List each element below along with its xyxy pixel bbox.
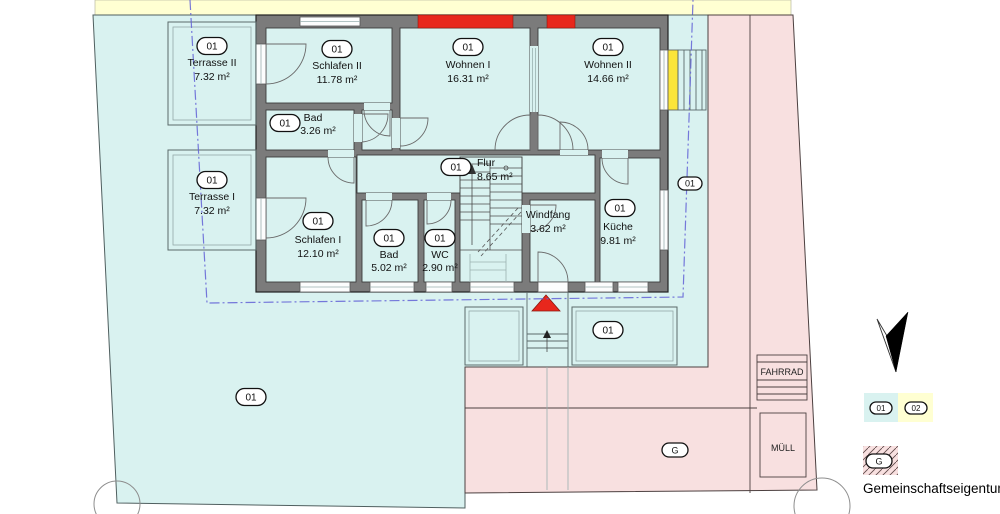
room-fill-kueche [600,158,660,282]
entry-terrace-badge: 01 [593,322,623,339]
unit-badge: 01 [312,217,324,228]
room-name: Wohnen I [446,59,491,71]
room-name: Flur [477,157,496,169]
room-name: WC [431,249,449,261]
communal-badge: G [671,446,678,456]
floor-plan-canvas: FAHRRAD MÜLL 01 Terrasse II 7.32 m² 01 S… [0,0,1000,514]
unit2-stair-access-bar [668,50,678,110]
legend-unit2-swatch: 02 [898,393,933,422]
unit-badge: 02 [912,404,921,413]
room-area: 5.02 m² [371,262,407,274]
room-area: 3.26 m² [300,125,336,137]
room-area: 8.65 m² [477,171,513,183]
room-name: Windfang [526,209,571,221]
legend: 01 02 G Gemeinschaftseigentum [863,312,1000,496]
room-area: 12.10 m² [297,248,339,260]
room-area: 3.62 m² [530,223,566,235]
room-name: Küche [603,221,633,233]
unit-badge: 01 [206,176,218,187]
east-strip-badge: 01 [678,177,702,190]
room-name: Schlafen II [312,60,362,72]
room-area: 14.66 m² [587,73,629,85]
unit-badge: 01 [434,234,446,245]
unit-badge: 01 [602,43,614,54]
red-marked-wall-segments [418,15,575,28]
unit-badge: 01 [614,204,626,215]
unit-badge: 01 [383,234,395,245]
legend-communal-text: Gemeinschaftseigentum [863,481,1000,496]
room-area: 16.31 m² [447,73,489,85]
legend-unit1-swatch: 01 [864,393,898,422]
communal-badge: G [875,457,882,467]
entrance-door-gap [538,282,568,292]
unit-badge: 01 [602,326,614,337]
garden-badge: 01 [236,389,266,406]
north-arrow-icon [877,312,908,372]
unit-badge: 01 [462,43,474,54]
unit-badge: 01 [331,45,343,56]
room-label-kueche: 01 Küche 9.81 m² [600,200,636,248]
room-name: Bad [380,249,399,261]
legend-communal-swatch: G [863,446,898,475]
floor-plan-page: FAHRRAD MÜLL 01 Terrasse II 7.32 m² 01 S… [0,0,1000,514]
room-area: 2.90 m² [422,262,458,274]
bike-label: FAHRRAD [760,367,804,377]
unit-badge: 01 [279,119,291,130]
unit-badge: 01 [206,42,218,53]
room-area: 9.81 m² [600,235,636,247]
room-area: 11.78 m² [317,74,358,86]
communal-g-badge: G [662,443,688,457]
room-name: Bad [304,112,323,124]
room-area: 7.32 m² [194,71,230,83]
unit-badge: 01 [877,404,886,413]
room-name: Schlafen I [295,234,342,246]
room-area: 7.32 m² [194,205,230,217]
room-name: Terrasse II [187,57,236,69]
unit2-area-strip [95,0,791,15]
room-name: Wohnen II [584,59,632,71]
unit-badge: 01 [685,179,695,189]
unit-badge: 01 [245,393,257,404]
unit-badge: 01 [450,163,462,174]
waste-label: MÜLL [771,443,795,453]
room-name: Terrasse I [189,191,235,203]
